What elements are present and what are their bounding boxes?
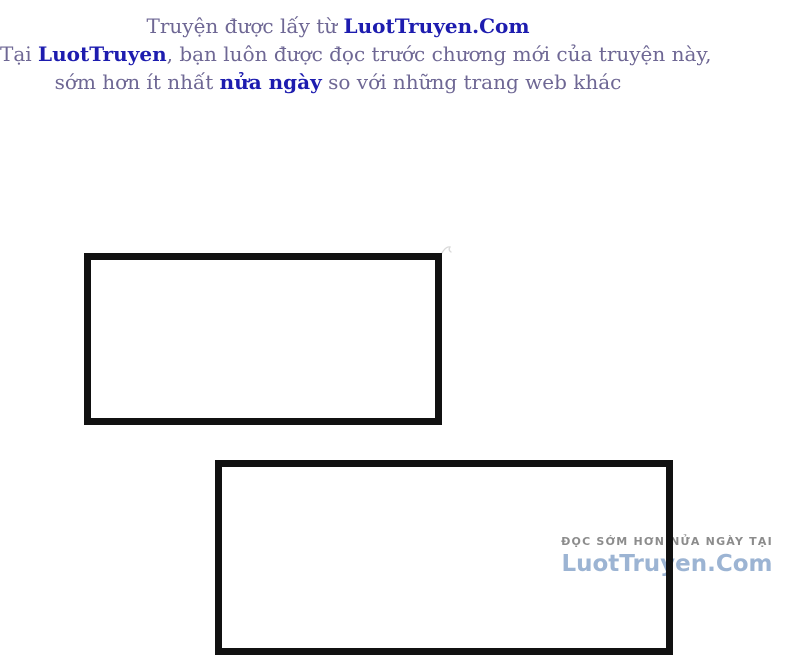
notice-text: Truyện được lấy từ (147, 14, 344, 38)
promo-notice: Truyện được lấy từ LuotTruyen.Com Tại Lu… (0, 12, 676, 96)
notice-text: sớm hơn ít nhất (55, 70, 220, 94)
pen-scratch-mark (439, 241, 453, 253)
notice-text: so với những trang web khác (322, 70, 622, 94)
highlight-text: nửa ngày (220, 70, 322, 94)
promo-notice-line-2: Tại LuotTruyen, bạn luôn được đọc trước … (0, 40, 676, 68)
promo-notice-line-3: sớm hơn ít nhất nửa ngày so với những tr… (0, 68, 676, 96)
comic-panel-1 (84, 253, 442, 425)
comic-panel-2 (215, 460, 673, 655)
promo-notice-line-1: Truyện được lấy từ LuotTruyen.Com (0, 12, 676, 40)
site-name-text: LuotTruyen (38, 42, 167, 66)
site-name-text: LuotTruyen.Com (344, 14, 530, 38)
notice-text: Tại (0, 42, 38, 66)
notice-text: , bạn luôn được đọc trước chương mới của… (167, 42, 712, 66)
